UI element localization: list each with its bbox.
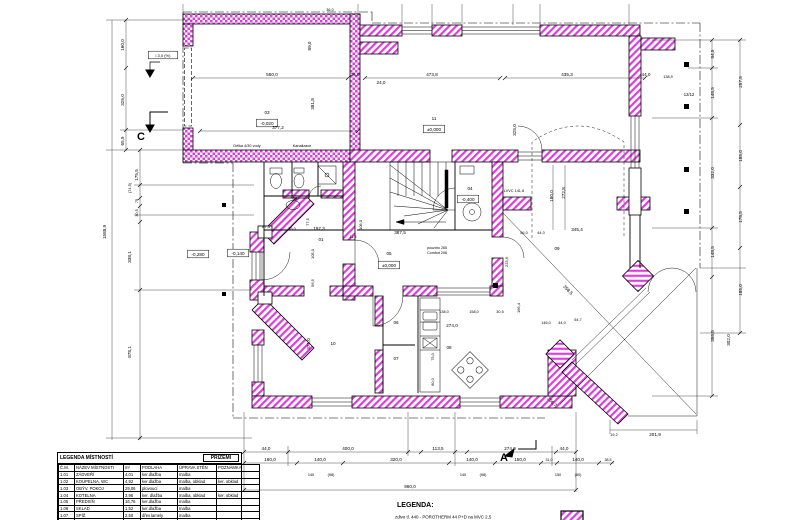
plan-label: Délka 4/30 vody xyxy=(233,144,260,148)
plan-label: 302,0 xyxy=(726,334,731,346)
plan-label: 160,0 xyxy=(264,457,276,462)
legend-cell: malba xyxy=(178,512,217,519)
legend-cell: 1.04 xyxy=(59,492,75,499)
partition-walls xyxy=(264,162,640,393)
post-icon xyxy=(684,167,689,172)
legend-cell: OBÝV. POKOJ xyxy=(75,485,124,492)
room-legend-title: LEGENDA MÍSTNOSTÍ xyxy=(60,455,113,461)
plan-label: 10 xyxy=(330,341,336,346)
plan-label: 320,0 xyxy=(390,457,402,462)
legend-cell xyxy=(217,505,260,512)
plan-label: 36,0 xyxy=(326,8,333,12)
legend-cell: ker.dlažba xyxy=(141,505,178,512)
legend-title: LEGENDA: xyxy=(397,502,434,509)
legend-cell: 1.05 xyxy=(59,498,75,505)
plan-label: 54,7 xyxy=(574,318,581,322)
table-row: 1.03OBÝV. POKOJ29,06plovoucímalba xyxy=(59,485,260,492)
table-row: 1.02KOUPELNA, WC4,92ker.dlažbamalba, obk… xyxy=(59,478,260,485)
plan-label: 44,0 xyxy=(537,231,544,235)
legend-cell: ker. obklad xyxy=(217,478,260,485)
plan-label: 325,0 xyxy=(120,94,125,106)
stairs xyxy=(390,162,452,230)
plan-label: (80) xyxy=(575,473,582,477)
plan-label: 75 xyxy=(135,199,139,203)
legend-col-header: ÚPRAVA STĚN xyxy=(178,465,217,472)
plan-label: 358,5 xyxy=(710,330,715,342)
plan-label: 02 xyxy=(292,196,298,201)
pillars xyxy=(258,168,641,304)
floor-label: PŘÍZEMÍ xyxy=(203,454,239,462)
section-c-mark xyxy=(150,112,168,126)
plan-label: 19,2 xyxy=(610,433,617,437)
plan-label: 30,5 xyxy=(496,310,503,314)
post-icon xyxy=(222,203,226,207)
legend-cell: malba, obklad xyxy=(178,492,217,499)
room-legend-header: LEGENDA MÍSTNOSTÍ PŘÍZEMÍ xyxy=(58,453,241,464)
plan-label: 140,0 xyxy=(572,457,584,462)
legend-col-header: PODLAHA xyxy=(141,465,178,472)
plan-label: 09 xyxy=(554,246,560,251)
plan-label: 435,3 xyxy=(561,72,573,77)
legend-cell: 29,06 xyxy=(124,485,141,492)
legend-cell xyxy=(217,512,260,519)
stair-arrow xyxy=(396,220,404,225)
legend-cell: malba xyxy=(178,498,217,505)
plan-label: 257,5 xyxy=(738,76,743,88)
legend-cell: 1,52 xyxy=(124,505,141,512)
plan-label: 332,0 xyxy=(710,167,715,179)
plan-label: 175,5 xyxy=(134,169,139,181)
plan-label: 140,0 xyxy=(466,457,478,462)
plan-label: 24,0 xyxy=(377,80,386,85)
terrace-lines xyxy=(503,126,697,416)
plan-label: LVVC 141,8 xyxy=(504,189,524,193)
floor-plan-canvas: LEGENDA: zdivo tl. 440 - POROTHERM 44 P+… xyxy=(0,0,800,520)
legend-cell: malba xyxy=(178,471,217,478)
legend-cell: 1.03 xyxy=(59,485,75,492)
plan-label: 148,5 xyxy=(710,246,715,258)
legend-cell: ker.dlažba xyxy=(141,471,178,478)
plan-label: ±0,000 xyxy=(427,127,441,132)
plan-label: 1588,9 xyxy=(102,225,107,239)
plan-label: 150,0 xyxy=(514,457,526,462)
plan-label: 44,0 xyxy=(642,72,651,77)
plan-label: 345,4 xyxy=(571,227,583,232)
plan-label: 160,0 xyxy=(120,39,125,51)
plan-label: 201,9 xyxy=(649,432,661,437)
plan-label: 56,5 xyxy=(310,278,315,287)
plan-label: 105,0 xyxy=(310,248,315,259)
plan-label: 197,3 xyxy=(313,226,325,231)
plan-label: i 3,0 (%) xyxy=(156,53,172,58)
room-legend-grid: Č.M.NÁZEV MÍSTNOSTIm²PODLAHAÚPRAVA STĚNP… xyxy=(58,464,260,520)
plan-label: 148,5 xyxy=(710,87,715,99)
stair-wall xyxy=(445,170,448,208)
plan-label: 377,2 xyxy=(272,125,284,130)
plan-label: 185,0 xyxy=(738,150,743,162)
plan-label: 44,0 xyxy=(558,321,565,325)
plan-label: (98) xyxy=(480,473,487,477)
boundary-lines xyxy=(183,12,700,418)
section-label: C xyxy=(137,131,145,143)
legend-cell: ker. obklad xyxy=(217,492,260,499)
legend-cell xyxy=(217,471,260,478)
plan-label: 178,5 xyxy=(738,211,743,223)
plan-label: 371,0 xyxy=(306,338,311,350)
kitchen-sink-icon xyxy=(423,312,437,320)
legend-col-header: m² xyxy=(124,465,141,472)
boiler-icon xyxy=(463,203,481,221)
plan-label: 274,0 xyxy=(446,323,458,328)
plan-label: 04 xyxy=(467,186,473,191)
plan-label: 84,5 xyxy=(710,49,715,58)
plan-label: 65,9 xyxy=(120,136,125,145)
plan-label: 272,8 xyxy=(561,187,566,199)
legend-cell xyxy=(217,498,260,505)
plan-label: 140,0 xyxy=(314,457,326,462)
legend-cell: SKLAD xyxy=(75,505,124,512)
plan-label: 31,0 xyxy=(546,458,553,462)
legend-cell: KOTELNA xyxy=(75,492,124,499)
plan-label: 274,0 xyxy=(504,446,516,451)
legend-cell: dřev.lamely xyxy=(141,512,178,519)
plan-label: -0,280 xyxy=(191,252,204,257)
section-label: A xyxy=(500,452,508,464)
post-icon xyxy=(684,62,689,67)
legend-wall-swatch xyxy=(561,511,583,520)
plan-label: 158,0 xyxy=(469,310,479,314)
plan-label: ±0,000 xyxy=(382,263,396,268)
table-row: 1.04KOTELNA3,96ker. dlažbamalba, obkladk… xyxy=(59,492,260,499)
garage-walls xyxy=(183,14,360,162)
legend-cell: ZÁDVEŘÍ xyxy=(75,471,124,478)
labels-layer: 03-0,02011±0,000010204-0,40005±0,0000607… xyxy=(102,8,743,489)
legend-cell: malba xyxy=(178,485,217,492)
legend-cell: plovoucí xyxy=(141,485,178,492)
legend-cell: ker.dlažba xyxy=(141,478,178,485)
bidet-icon xyxy=(294,174,304,188)
table-row: 1.06SKLAD1,52ker.dlažbamalba xyxy=(59,505,260,512)
plan-label: 80,0 xyxy=(431,378,435,385)
legend-cell: malba xyxy=(178,505,217,512)
plan-label: 381,8 xyxy=(310,98,315,110)
legend-col-header: POZNÁMKA xyxy=(217,465,260,472)
plan-label: 358,5 xyxy=(562,284,574,296)
legend-item-text: zdivo tl. 440 - POROTHERM 44 P+D na MVC … xyxy=(395,515,492,520)
section-a-mark xyxy=(518,440,536,449)
legend-cell: malba, obklad xyxy=(178,478,217,485)
plan-label: 01 xyxy=(318,237,324,242)
table-row: 1.07SPÍŽ2,50dřev.lamelymalba xyxy=(59,512,260,519)
post-icon xyxy=(222,292,226,296)
plan-label: 223,6 xyxy=(504,256,509,267)
plan-label: 138,0 xyxy=(439,310,449,314)
plan-label: 12/12 xyxy=(684,92,695,97)
plan-label: 338,1 xyxy=(127,251,132,263)
plan-label: 77,5 xyxy=(305,217,310,226)
toilet-icon xyxy=(271,174,282,189)
plan-label: pouzdro 265 xyxy=(427,246,447,250)
plan-label: 07 xyxy=(393,356,399,361)
post-icon xyxy=(493,283,498,288)
legend-col-header: Č.M. xyxy=(59,465,75,472)
plan-label: 960,0 xyxy=(404,484,416,489)
plan-label: 146,0 xyxy=(541,321,551,325)
plan-label: 89,0 xyxy=(307,41,312,50)
legend-cell: PŘEDSÍŇ xyxy=(75,498,124,505)
plan-label: Kanalizace xyxy=(293,144,312,148)
legend-cell: 1.06 xyxy=(59,505,75,512)
garage-door xyxy=(185,48,192,126)
legend-cell: 3,96 xyxy=(124,492,141,499)
legend-cell: 4,01 xyxy=(124,471,141,478)
plan-label: -0,400 xyxy=(461,197,474,202)
dimension-ticks xyxy=(124,18,742,492)
plan-label: 44,0 xyxy=(262,446,271,451)
legend-block: LEGENDA: zdivo tl. 440 - POROTHERM 44 P+… xyxy=(395,502,583,520)
legend-cell xyxy=(217,485,260,492)
legend-cell: SPÍŽ xyxy=(75,512,124,519)
post-icon xyxy=(684,104,689,109)
plan-label: 08 xyxy=(446,345,452,350)
canopy-dashed xyxy=(532,126,624,238)
plan-label: -0,140 xyxy=(231,251,244,256)
plan-label: 550,0 xyxy=(266,72,278,77)
plan-label: 108,0 xyxy=(358,219,363,230)
plan-label: (98) xyxy=(328,473,335,477)
plan-label: 75,0 xyxy=(431,353,435,360)
room-legend-table: LEGENDA MÍSTNOSTÍ PŘÍZEMÍ Č.M.NÁZEV MÍST… xyxy=(57,452,242,520)
plan-label: 35,0 xyxy=(351,72,360,77)
plan-label: 03 xyxy=(264,110,270,115)
plan-label: 138,9 xyxy=(663,75,673,79)
plan-label: 180,0 xyxy=(549,190,554,202)
post-icon xyxy=(684,209,689,214)
table-row: 1.01ZÁDVEŘÍ4,01ker.dlažbamalba xyxy=(59,471,260,478)
plan-label: 44,0 xyxy=(560,446,569,451)
plan-label: 140 xyxy=(308,473,314,477)
legend-cell: 4,92 xyxy=(124,478,141,485)
table-row: 1.05PŘEDSÍŇ16,76ker.dlažbamalba xyxy=(59,498,260,505)
plan-label: Comfort 298 xyxy=(427,251,447,255)
floor-plan-page: LEGENDA: zdivo tl. 440 - POROTHERM 44 P+… xyxy=(0,0,800,520)
plan-label: 878,1 xyxy=(127,346,132,358)
dimension-lines xyxy=(106,4,746,492)
plan-label: 35,0 xyxy=(288,226,297,231)
plan-label: 11,5 xyxy=(349,235,356,239)
plan-label: 38,5 xyxy=(605,458,612,462)
legend-cell: ker.dlažba xyxy=(141,498,178,505)
plan-label: 11 xyxy=(432,116,437,121)
legend-cell: 1.02 xyxy=(59,478,75,485)
legend-cell: 16,76 xyxy=(124,498,141,505)
plan-label: 113,5 xyxy=(432,446,444,451)
plan-label: 387,5 xyxy=(394,230,406,235)
legend-cell: 1.01 xyxy=(59,471,75,478)
plan-label: 166,4 xyxy=(516,302,521,313)
stove-icon xyxy=(452,352,489,389)
legend-cell: 2,50 xyxy=(124,512,141,519)
plan-label: 56,0 xyxy=(520,231,527,235)
plan-label: 05 xyxy=(386,251,392,256)
plan-label: 325,0 xyxy=(512,124,517,136)
legend-cell: ker. dlažba xyxy=(141,492,178,499)
plan-label: 150 xyxy=(555,473,561,477)
legend-cell: KOUPELNA, WC xyxy=(75,478,124,485)
plan-label: 185,0 xyxy=(738,284,743,296)
legend-cell: 1.07 xyxy=(59,512,75,519)
plan-label: 87,3 xyxy=(262,224,271,229)
plan-label: 400,0 xyxy=(342,446,354,451)
legend-col-header: NÁZEV MÍSTNOSTI xyxy=(75,465,124,472)
plan-label: (74,5) xyxy=(128,182,132,193)
plan-label: 473,8 xyxy=(426,72,438,77)
plan-label: 06 xyxy=(393,320,399,325)
plan-label: 140 xyxy=(460,473,466,477)
plan-label: 30,5 xyxy=(135,209,139,216)
